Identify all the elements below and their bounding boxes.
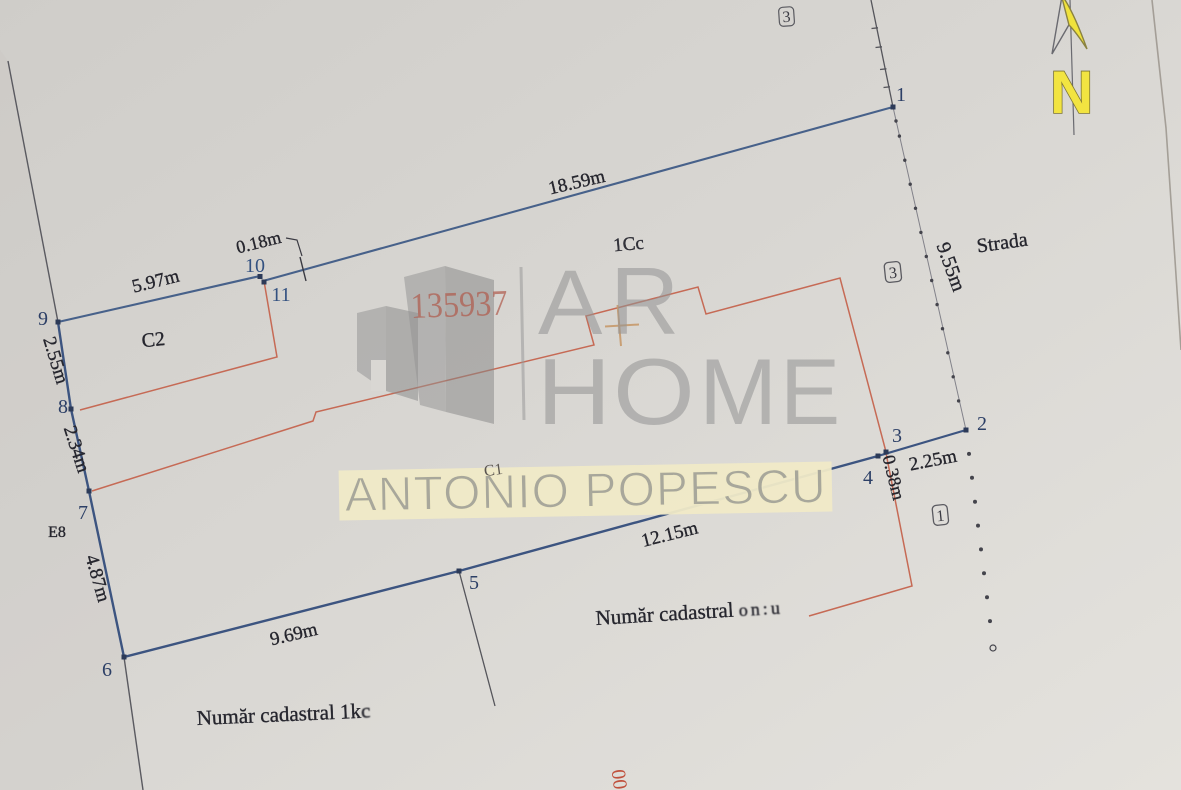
svg-text:C1: C1	[483, 461, 504, 480]
svg-text:C2: C2	[141, 328, 167, 352]
svg-text:6: 6	[102, 659, 112, 681]
svg-text:00: 00	[608, 768, 632, 790]
svg-text:R: R	[610, 248, 679, 355]
svg-text:N: N	[1050, 59, 1093, 126]
svg-text:M: M	[699, 339, 777, 444]
svg-text:O: O	[613, 340, 695, 445]
svg-text:9: 9	[38, 308, 48, 330]
svg-text:135937: 135937	[410, 283, 508, 326]
svg-text:11: 11	[271, 284, 290, 306]
svg-text:E8: E8	[48, 524, 66, 541]
svg-text:E: E	[780, 339, 840, 444]
svg-text:2: 2	[977, 413, 987, 435]
svg-text:1: 1	[896, 84, 906, 106]
svg-text:8: 8	[58, 396, 68, 418]
svg-text:H: H	[537, 339, 611, 444]
svg-text:4: 4	[863, 467, 873, 489]
svg-text:3: 3	[892, 425, 902, 447]
svg-text:3: 3	[782, 9, 791, 27]
svg-text:10: 10	[245, 255, 265, 277]
svg-text:5: 5	[469, 572, 479, 594]
svg-text:7: 7	[78, 502, 88, 524]
